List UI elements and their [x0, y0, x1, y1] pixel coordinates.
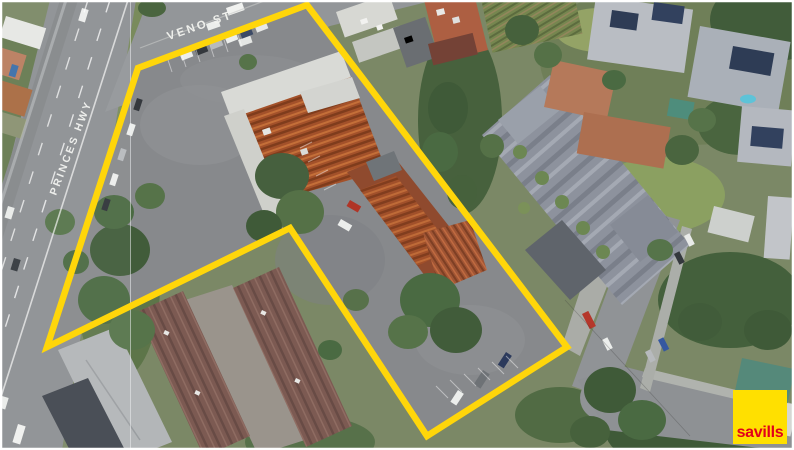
savills-logo: savills — [733, 390, 787, 444]
savills-logo-text: savills — [737, 424, 784, 441]
photo-seam — [0, 0, 131, 450]
aerial-scene: VENO ST PRINCES HWY savills — [0, 0, 794, 450]
aerial-photograph: VENO ST PRINCES HWY savills — [0, 0, 794, 450]
